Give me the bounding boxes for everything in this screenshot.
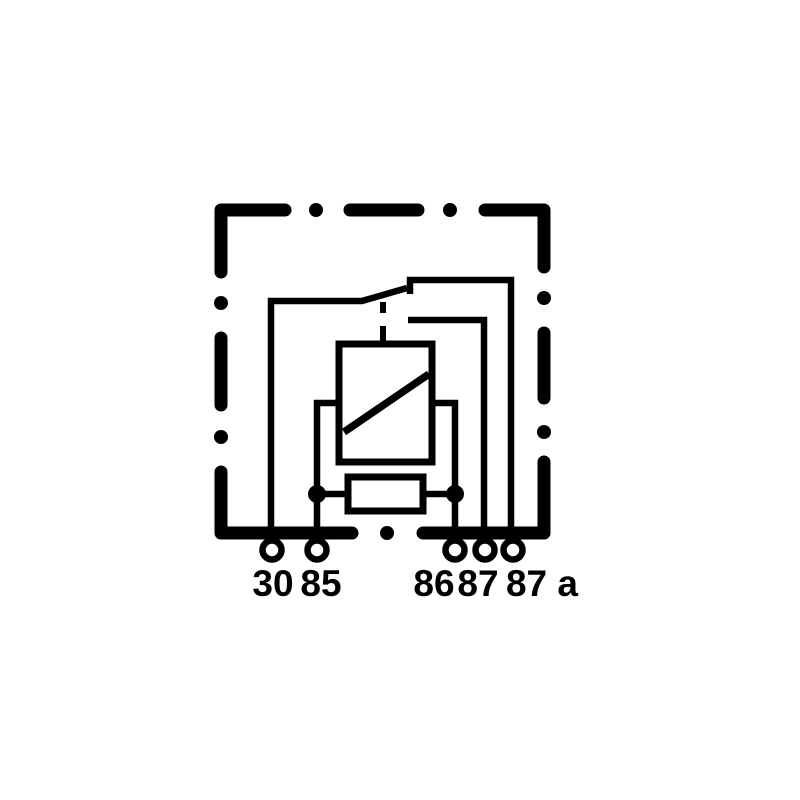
housing-dot: [443, 203, 457, 217]
housing-dot: [537, 291, 551, 305]
junction-dot-85: [308, 485, 326, 503]
housing-corner-top-right: [485, 210, 544, 267]
terminal-pin-86: [446, 541, 465, 560]
housing-corner-top-left: [221, 210, 285, 272]
terminal-pin-85: [308, 541, 327, 560]
terminal-pin-87: [476, 541, 495, 560]
housing-dot: [214, 430, 228, 444]
terminal-label-87: 87: [457, 563, 498, 604]
junction-dot-86: [446, 485, 464, 503]
terminal-label-85: 85: [300, 563, 341, 604]
terminal-label-87a: 87 a: [506, 563, 578, 604]
housing-dot: [537, 425, 551, 439]
terminal-pin-30: [263, 541, 282, 560]
terminal-label-30: 30: [252, 563, 293, 604]
housing-dot: [380, 526, 394, 540]
terminal-labels: 30 85 86 87 87 a: [252, 563, 578, 604]
relay-wiring-diagram: 30 85 86 87 87 a: [0, 0, 800, 800]
housing-corner-bottom-left: [221, 472, 352, 533]
terminal-label-86: 86: [413, 563, 454, 604]
relay-schematic-svg: 30 85 86 87 87 a: [0, 0, 800, 800]
housing-dot: [309, 203, 323, 217]
housing-dot: [214, 296, 228, 310]
terminal-pins: [263, 541, 523, 560]
terminal-pin-87a: [504, 541, 523, 560]
relay-coil-symbol: [339, 344, 432, 462]
resistor-rectangle: [348, 477, 423, 511]
